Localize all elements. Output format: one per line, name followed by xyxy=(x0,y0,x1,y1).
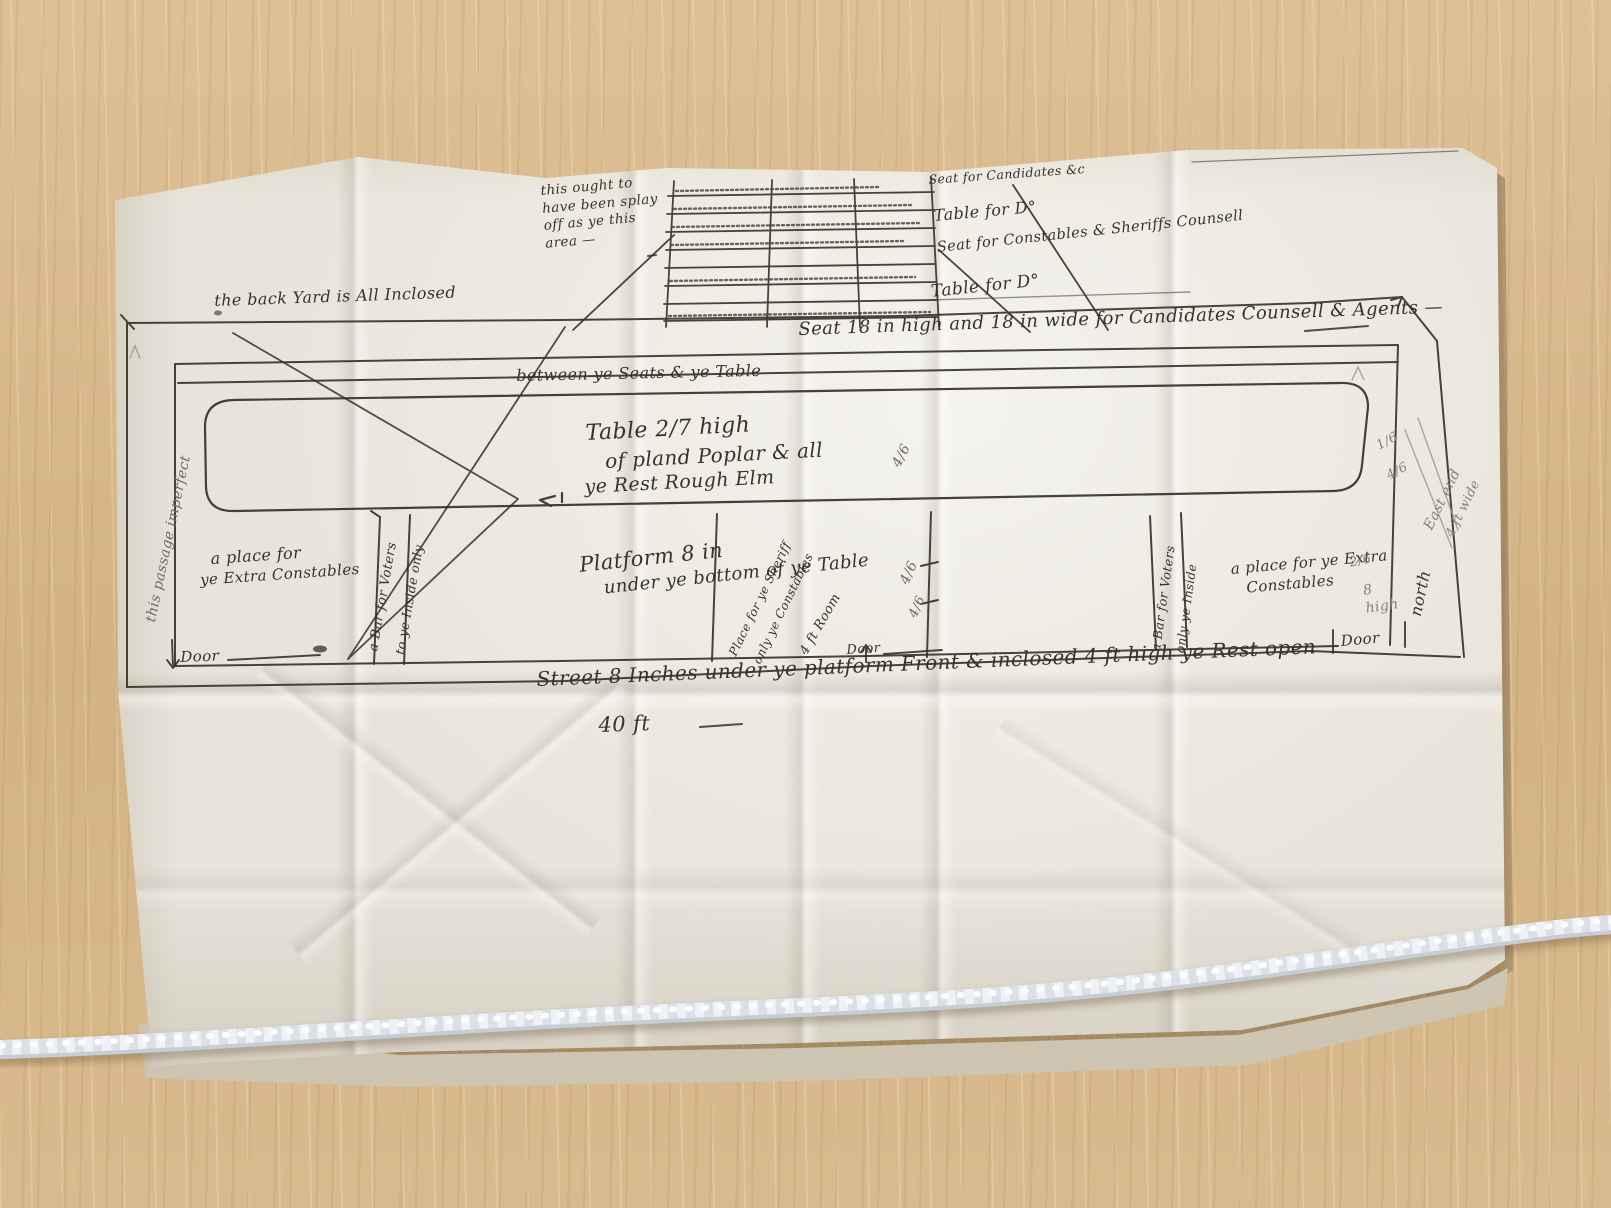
annotation-splay-note: this ought to have been splay off as ye … xyxy=(540,172,668,253)
annotation-table-spec: Table 2/7 high of pland Poplar & all ye … xyxy=(585,408,825,500)
annotation-door-right: Door xyxy=(1340,629,1380,652)
pencil-measure-7: 8 high xyxy=(1362,577,1405,618)
annotation-door-left: Door xyxy=(180,647,220,668)
annotation-forty-feet: 40 ft xyxy=(598,710,651,739)
paper-sheet xyxy=(108,143,1508,1078)
fold-crease xyxy=(336,143,372,1078)
photograph-of-manuscript-plan: this ought to have been splay off as ye … xyxy=(0,0,1611,1208)
fold-crease xyxy=(616,143,652,1078)
